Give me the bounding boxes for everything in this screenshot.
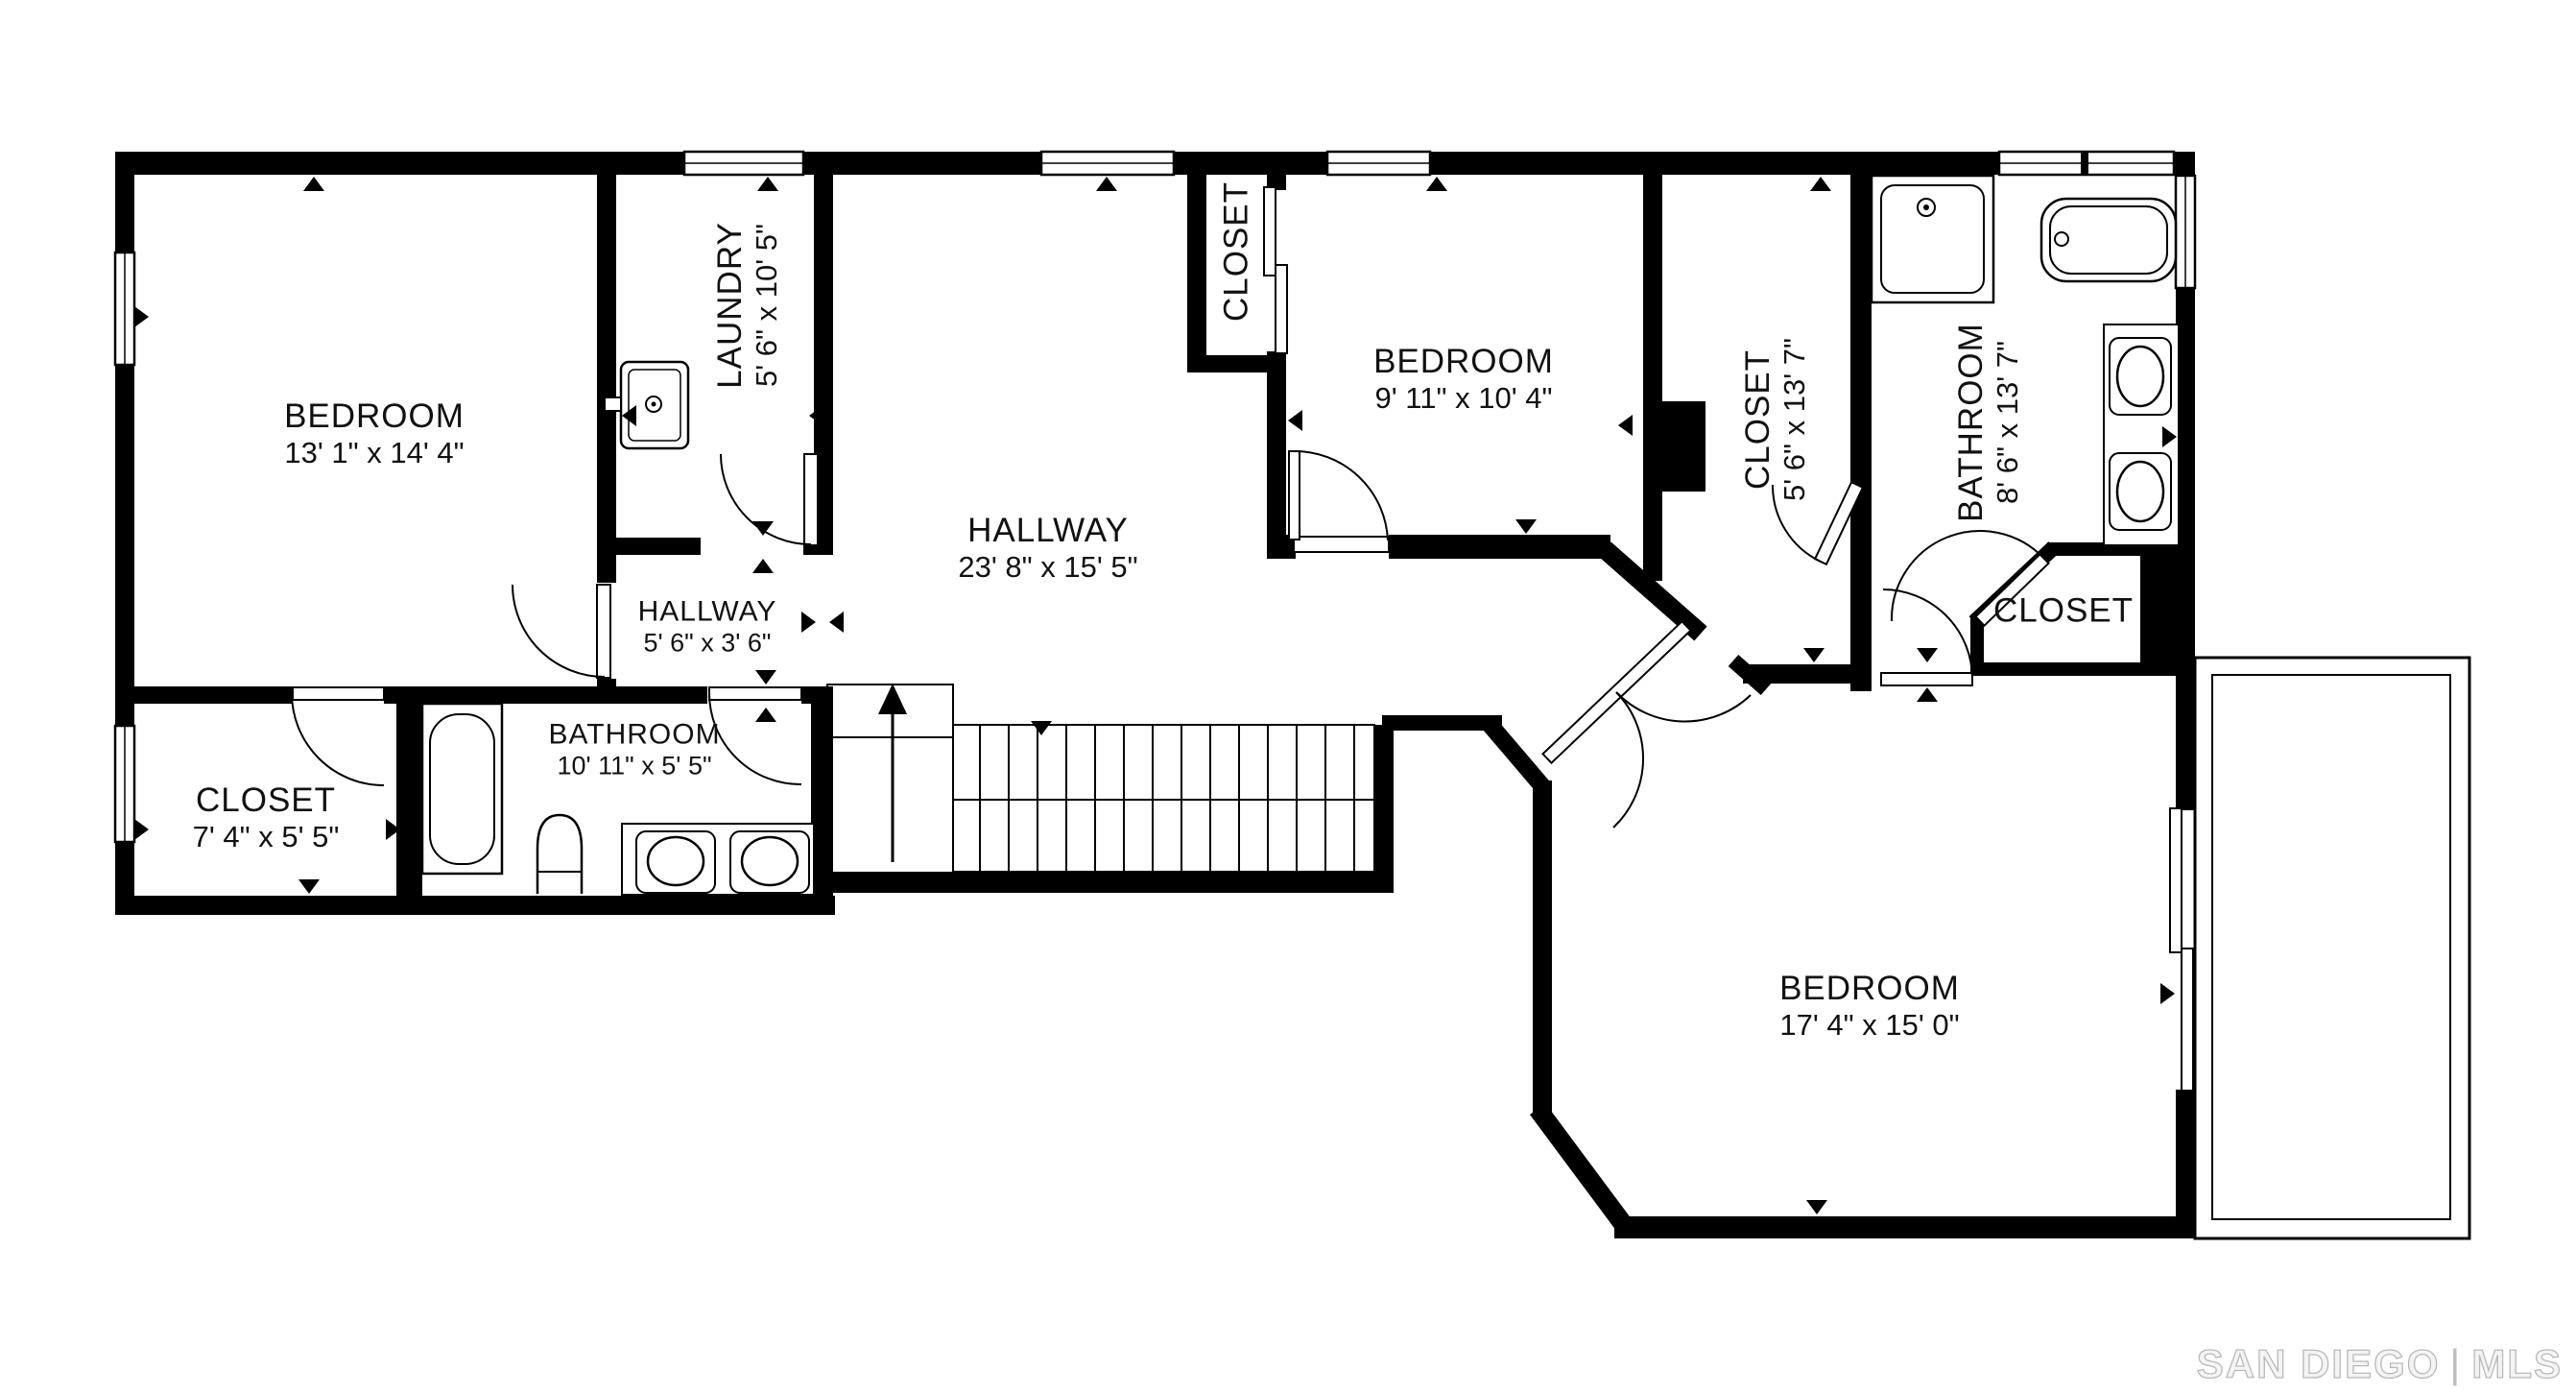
door-bedroom-1 xyxy=(513,585,610,678)
wall xyxy=(597,538,701,555)
marker-up xyxy=(752,559,774,573)
marker-right xyxy=(2160,983,2175,1004)
marker-down xyxy=(1917,648,1938,662)
marker-down xyxy=(1031,721,1052,735)
room-name: HALLWAY xyxy=(958,511,1137,550)
wall xyxy=(1267,351,1286,557)
room-dims: 7' 4" x 5' 5" xyxy=(193,820,340,855)
floor-plan-drawing xyxy=(0,0,2576,1393)
room-name: CLOSET xyxy=(1993,590,2134,630)
closet-slider-panel xyxy=(1264,187,1276,276)
room-label-hallway-main: HALLWAY 23' 8" x 15' 5" xyxy=(958,511,1137,586)
door-bedroom-3-double xyxy=(1543,621,1752,828)
room-dims: 5' 6" x 10' 5" xyxy=(750,222,785,389)
room-dims: 10' 11" x 5' 5" xyxy=(548,752,720,782)
room-label-bedroom-2: BEDROOM 9' 11" x 10' 4" xyxy=(1373,342,1554,417)
master-bathtub xyxy=(2041,199,2176,281)
window xyxy=(2176,176,2195,288)
room-name: BATHROOM xyxy=(1951,323,1991,522)
marker-up xyxy=(757,177,778,191)
door-bedroom-2 xyxy=(1289,451,1389,552)
hall-toilet xyxy=(537,815,582,894)
room-dims: 17' 4" x 15' 0" xyxy=(1779,1008,1960,1044)
room-label-bedroom-3: BEDROOM 17' 4" x 15' 0" xyxy=(1779,969,1960,1044)
laundry-sink xyxy=(605,362,688,448)
marker-down xyxy=(298,879,320,894)
room-name: CLOSET xyxy=(1738,338,1777,501)
room-label-bathroom-master: BATHROOM 8' 6" x 13' 7" xyxy=(1951,323,2026,522)
wall xyxy=(1389,535,1610,559)
room-name: BATHROOM xyxy=(548,717,720,751)
wall xyxy=(1850,152,1872,691)
room-dims: 23' 8" x 15' 5" xyxy=(958,550,1137,586)
window xyxy=(1041,152,1174,175)
hall-bathtub xyxy=(422,704,502,874)
room-label-closet-walkin: CLOSET xyxy=(1993,590,2134,630)
sliding-doors xyxy=(1264,187,2193,1091)
wall xyxy=(597,152,616,583)
marker-up xyxy=(1917,687,1938,702)
room-dims: 5' 6" x 3' 6" xyxy=(638,629,777,660)
door-bathroom-master xyxy=(1881,589,1972,685)
marker-down xyxy=(1515,519,1537,534)
watermark-right: MLS xyxy=(2471,1341,2563,1386)
balcony-inner xyxy=(2212,675,2450,1219)
room-label-hallway-small: HALLWAY 5' 6" x 3' 6" xyxy=(638,594,777,659)
marker-up xyxy=(1096,177,1117,191)
walls xyxy=(115,152,2195,1238)
balcony-slider-panel xyxy=(2170,808,2182,952)
door-bathroom-hall xyxy=(709,687,801,784)
wall xyxy=(396,704,422,896)
door-closet-bottom-left xyxy=(292,687,384,785)
marker-down xyxy=(755,670,776,684)
marker-left xyxy=(1618,415,1633,436)
mls-watermark: SAN DIEGO|MLS xyxy=(2197,1341,2563,1387)
room-label-closet-bottom-left: CLOSET 7' 4" x 5' 5" xyxy=(193,781,340,855)
room-label-closet-top: CLOSET xyxy=(1216,181,1255,322)
shower xyxy=(1872,176,1993,302)
room-name: CLOSET xyxy=(193,781,340,820)
watermark-left: SAN DIEGO xyxy=(2197,1341,2441,1386)
door-laundry xyxy=(721,454,818,545)
balcony-outer xyxy=(2195,658,2469,1238)
wall xyxy=(1614,1216,2195,1238)
marker-right xyxy=(801,612,816,633)
hall-double-vanity xyxy=(622,824,814,895)
room-name: HALLWAY xyxy=(638,594,777,628)
room-name: LAUNDRY xyxy=(710,222,750,389)
window xyxy=(1327,152,1430,175)
window xyxy=(684,152,803,175)
room-name: BEDROOM xyxy=(1779,969,1960,1008)
wall xyxy=(825,872,1394,893)
floor-plan-page: BEDROOM 13' 1" x 14' 4" LAUNDRY 5' 6" x … xyxy=(0,0,2576,1393)
balcony-slider-panel xyxy=(2182,949,2193,1091)
wall xyxy=(2140,542,2178,676)
balcony xyxy=(2195,658,2469,1238)
wall xyxy=(2176,1090,2195,1238)
marker-down xyxy=(1803,648,1825,662)
stair-up-arrow-head xyxy=(878,684,907,714)
stair-treads xyxy=(980,725,1354,872)
room-dims: 9' 11" x 10' 4" xyxy=(1373,381,1554,417)
room-dims: 13' 1" x 14' 4" xyxy=(284,436,465,471)
marker-down xyxy=(752,521,774,536)
marker-right xyxy=(134,306,149,327)
window xyxy=(115,252,134,365)
marker-left xyxy=(829,612,844,633)
wall-diagonal xyxy=(1488,722,1543,787)
marker-left xyxy=(1288,410,1302,431)
wall xyxy=(1267,152,1286,190)
marker-down xyxy=(1806,1200,1827,1214)
marker-right xyxy=(134,819,149,840)
room-name: BEDROOM xyxy=(284,396,465,436)
window xyxy=(115,726,134,842)
wall xyxy=(1187,152,1206,372)
room-name: BEDROOM xyxy=(1373,342,1554,381)
wall xyxy=(1374,725,1394,888)
room-label-bathroom-hall: BATHROOM 10' 11" x 5' 5" xyxy=(548,717,720,781)
wall xyxy=(115,896,835,915)
marker-up xyxy=(303,177,324,191)
marker-up xyxy=(1810,177,1831,191)
wall xyxy=(1187,355,1286,372)
window xyxy=(1999,152,2174,175)
wall xyxy=(384,686,707,704)
closet-slider-panel xyxy=(1276,265,1287,353)
room-label-closet-master: CLOSET 5' 6" x 13' 7" xyxy=(1738,338,1813,501)
room-dims: 5' 6" x 13' 7" xyxy=(1777,338,1813,501)
marker-up xyxy=(755,708,776,722)
staircase xyxy=(827,684,1374,872)
closet-wall-block xyxy=(1658,401,1705,492)
wall xyxy=(1643,152,1662,581)
watermark-separator: | xyxy=(2449,1341,2462,1386)
room-label-laundry: LAUNDRY 5' 6" x 10' 5" xyxy=(710,222,785,389)
room-dims: 8' 6" x 13' 7" xyxy=(1991,323,2026,522)
wall-diagonal xyxy=(1538,1109,1627,1229)
stair-body xyxy=(953,725,1374,872)
room-label-bedroom-1: BEDROOM 13' 1" x 14' 4" xyxy=(284,396,465,471)
marker-up xyxy=(1426,177,1447,191)
room-name: CLOSET xyxy=(1216,181,1255,322)
wall xyxy=(115,686,293,704)
